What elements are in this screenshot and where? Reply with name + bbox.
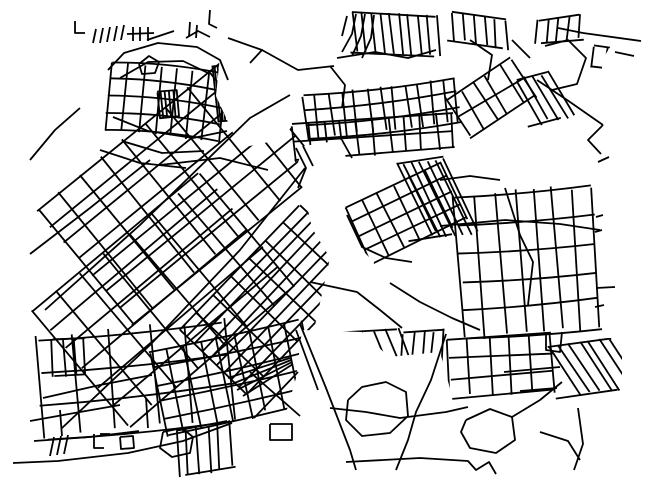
ne-margin: [602, 44, 655, 150]
street-map-svg: [0, 0, 655, 484]
east-dash-4: [596, 287, 615, 288]
top-margin: [0, 0, 655, 9]
tick-6: [189, 22, 190, 36]
left-margin: [0, 0, 30, 420]
bracket-bar: [127, 33, 154, 34]
east-margin: [602, 150, 655, 338]
bottom-margin: [0, 477, 655, 484]
map-viewport: [0, 0, 655, 484]
sw-comb-street: [53, 338, 85, 339]
